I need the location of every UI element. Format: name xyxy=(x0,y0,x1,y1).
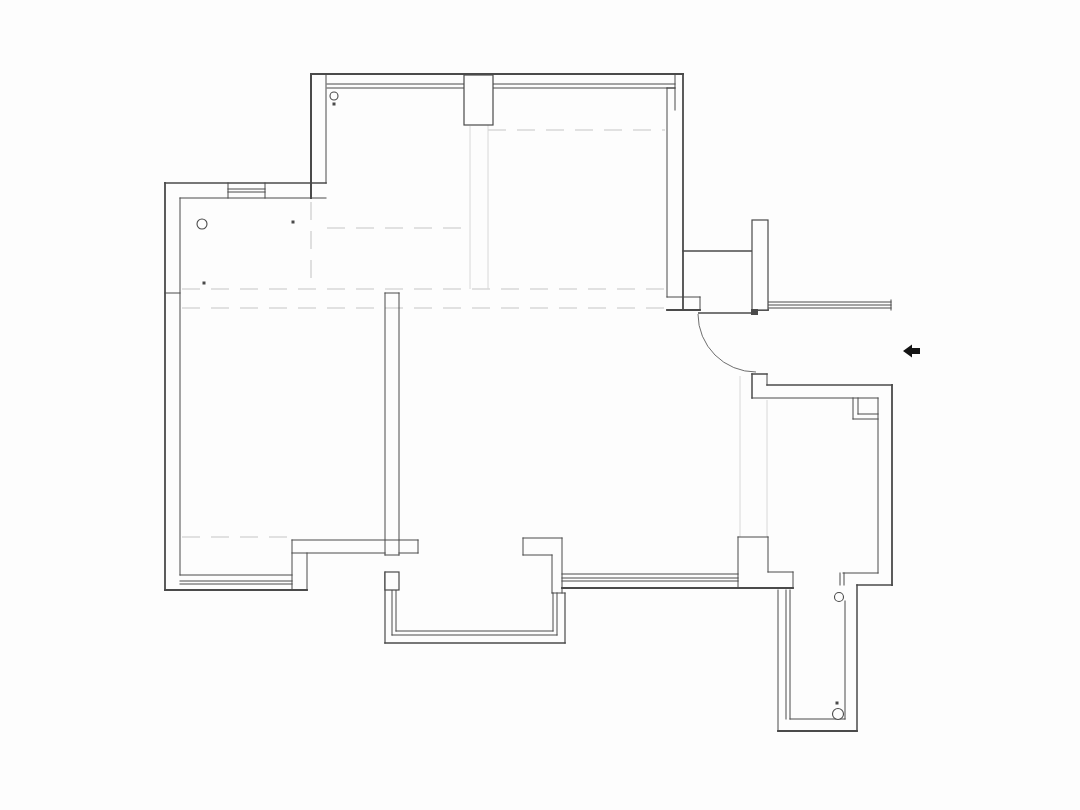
fixture-dot xyxy=(836,702,839,705)
fixture-dot xyxy=(203,282,206,285)
fixture-circle xyxy=(330,92,338,100)
structural-pier xyxy=(385,572,399,590)
door-hinge xyxy=(751,309,758,315)
fixture-dot xyxy=(292,221,295,224)
floorplan-canvas xyxy=(0,0,1080,810)
fixture-circle xyxy=(197,219,207,229)
floor-plan-svg xyxy=(0,0,1080,810)
structural-pier xyxy=(752,220,768,310)
paper-background xyxy=(0,0,1080,810)
fixture-circle xyxy=(835,593,844,602)
fixture-circle xyxy=(833,709,844,720)
structural-pier xyxy=(464,75,493,125)
fixture-dot xyxy=(333,103,336,106)
